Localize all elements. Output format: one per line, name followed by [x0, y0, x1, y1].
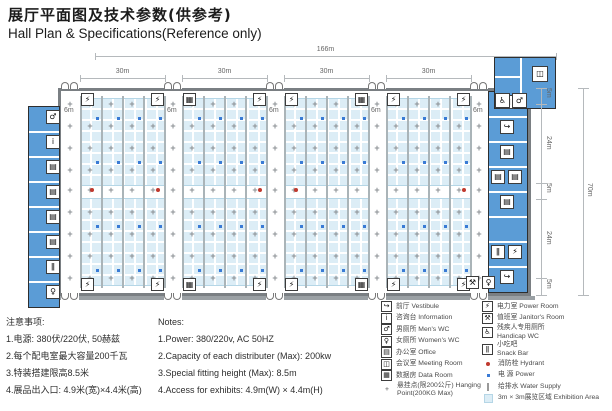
- hall-wall-right: [528, 88, 531, 296]
- room-divider: [489, 266, 527, 268]
- hanging-point-icon: +: [392, 186, 400, 194]
- legend-row: ⚡电力室 Power Room: [482, 301, 612, 313]
- hanging-point-icon: +: [434, 122, 442, 130]
- power-icon: [96, 161, 99, 164]
- hanging-point-icon: +: [373, 144, 381, 152]
- hanging-point-icon: +: [353, 230, 361, 238]
- information-icon: i: [46, 135, 60, 149]
- hanging-point-icon: +: [311, 208, 319, 216]
- hanging-point-icon: +: [373, 252, 381, 260]
- dim-label: 5m: [545, 279, 552, 289]
- hanging-point-icon: +: [66, 144, 74, 152]
- water-supply-line: [122, 96, 124, 288]
- power-icon: [138, 225, 141, 228]
- office-icon: ▤: [46, 185, 60, 199]
- hanging-point-icon: +: [373, 208, 381, 216]
- hanging-point-icon: +: [455, 122, 463, 130]
- dim-label: 30m: [213, 68, 237, 75]
- power-icon: [198, 269, 201, 272]
- door-arc: [70, 82, 78, 89]
- dim-tick: [95, 53, 96, 60]
- power-icon: [159, 225, 162, 228]
- power-room-icon: ⚡: [482, 301, 493, 312]
- water-supply-line: [164, 96, 166, 288]
- hanging-point-icon: +: [169, 208, 177, 216]
- door-arc: [173, 82, 181, 89]
- office-icon: ▤: [491, 170, 505, 184]
- water-supply-line: [143, 96, 145, 288]
- dim-label: 24m: [545, 136, 552, 150]
- hanging-point-icon: +: [107, 144, 115, 152]
- legend: ↪前厅 Vestibulei咨询台 Information♂男厕所 Men's …: [381, 301, 612, 399]
- door-arc: [173, 293, 181, 300]
- hanging-point-icon: +: [107, 274, 115, 282]
- hydrant-icon: [258, 188, 262, 192]
- room-divider: [489, 141, 527, 143]
- hanging-point-icon: +: [332, 122, 340, 130]
- office-icon: ▤: [381, 347, 392, 358]
- door-arc: [479, 82, 487, 89]
- hanging-point-icon: +: [169, 144, 177, 152]
- hanging-point-icon: +: [290, 166, 298, 174]
- door-arc: [164, 293, 172, 300]
- dim-label: 24m: [545, 231, 552, 245]
- hydrant-icon: [90, 188, 94, 192]
- legend-label: 会议室 Meeting Room: [396, 360, 462, 369]
- power-icon: [363, 269, 366, 272]
- hanging-point-icon: +: [392, 252, 400, 260]
- power-room-icon: ⚡: [151, 93, 164, 106]
- power-icon: [261, 269, 264, 272]
- note-line: 4.展品出入口: 4.9米(宽)×4.4米(高): [6, 382, 156, 399]
- hanging-point-icon: +: [149, 208, 157, 216]
- handicap-wc-icon: ♿: [495, 93, 510, 108]
- hanging-point-icon: +: [413, 230, 421, 238]
- power-icon: [219, 225, 222, 228]
- door-arc: [470, 82, 478, 89]
- power-icon: [159, 269, 162, 272]
- hanging-point-icon: +: [332, 274, 340, 282]
- office-icon: ▤: [46, 160, 60, 174]
- hanging-point-icon: +: [413, 208, 421, 216]
- room-divider: [489, 241, 527, 243]
- door-arc: [61, 293, 69, 300]
- power-icon: [300, 161, 303, 164]
- hanging-point-icon: +: [311, 166, 319, 174]
- power-icon: [219, 269, 222, 272]
- dim-tick: [267, 75, 268, 82]
- door-arc: [470, 293, 478, 300]
- power-icon: [444, 269, 447, 272]
- hydrant-icon: [462, 188, 466, 192]
- hanging-point-icon: +: [455, 252, 463, 260]
- legend-row: ♂男厕所 Men's WC: [381, 324, 481, 336]
- legend-row: ♿残疾人专用厕所 Handicap WC: [482, 324, 612, 341]
- power-icon: [138, 161, 141, 164]
- power-icon: [96, 269, 99, 272]
- hanging-point-icon: +: [86, 252, 94, 260]
- legend-row: 消防栓 Hydrant: [482, 358, 612, 370]
- snack-bar-icon: ǁ: [491, 245, 505, 259]
- hanging-point-icon: +: [290, 144, 298, 152]
- hanging-point-icon: +: [311, 100, 319, 108]
- hanging-point-icon: +: [209, 230, 217, 238]
- vestibule-icon: ↪: [500, 270, 514, 284]
- hanging-point-icon: +: [413, 186, 421, 194]
- power-icon: [117, 269, 120, 272]
- hanging-point-icon: +: [311, 186, 319, 194]
- power-icon: [402, 117, 405, 120]
- hanging-point-icon: +: [475, 166, 483, 174]
- power-icon: [159, 161, 162, 164]
- hanging-point-icon: +: [128, 208, 136, 216]
- legend-row: 给排水 Water Supply: [482, 381, 612, 393]
- door-arc: [377, 293, 385, 300]
- dim-tick: [80, 75, 81, 82]
- power-room-icon: ⚡: [81, 278, 94, 291]
- door-opening: [266, 82, 284, 89]
- dim-tick: [578, 295, 589, 296]
- hanging-point-icon: +: [66, 186, 74, 194]
- hanging-point-icon: +: [271, 186, 279, 194]
- door-arc: [70, 293, 78, 300]
- door-arc: [377, 82, 385, 89]
- hanging-point-icon: +: [66, 252, 74, 260]
- power-icon: [261, 225, 264, 228]
- power-icon: [444, 161, 447, 164]
- hanging-point-icon: +: [271, 208, 279, 216]
- power-icon: [444, 117, 447, 120]
- room-divider: [29, 156, 59, 158]
- hanging-point-icon: +: [413, 144, 421, 152]
- hanging-point-icon: +: [86, 208, 94, 216]
- hydrant-icon: [294, 188, 298, 192]
- dim-line: [284, 78, 369, 79]
- dim-label: 30m: [417, 68, 441, 75]
- room-divider: [495, 76, 520, 78]
- hanging-point-icon: +: [107, 166, 115, 174]
- legend-label: 小吃吧 Snack Bar: [497, 341, 528, 358]
- snack-bar-icon: ǁ: [482, 344, 493, 355]
- hanging-point-icon: +: [149, 144, 157, 152]
- hanging-point-icon: +: [169, 166, 177, 174]
- room-divider: [489, 191, 527, 193]
- power-room-icon: ⚡: [508, 245, 522, 259]
- hanging-point-icon: +: [188, 252, 196, 260]
- power-icon: [423, 161, 426, 164]
- hanging-point-icon: +: [373, 274, 381, 282]
- hanging-point-icon: +: [230, 252, 238, 260]
- hanging-point-icon: +: [107, 230, 115, 238]
- room-divider: [489, 116, 527, 118]
- power-icon: [138, 117, 141, 120]
- power-icon: [117, 225, 120, 228]
- hanging-point-icon: +: [107, 122, 115, 130]
- water-supply-line: [368, 96, 370, 288]
- water-supply-icon: [482, 382, 494, 392]
- legend-label: 残疾人专用厕所 Handicap WC: [497, 324, 545, 341]
- hanging-point-icon: +: [251, 166, 259, 174]
- water-supply-line: [428, 96, 430, 288]
- legend-row: 3m × 3m展览区域 Exhibition Area: [482, 393, 612, 405]
- legend-row: ▦数据房 Data Room: [381, 370, 481, 382]
- hanging-point-icon: +: [290, 252, 298, 260]
- water-supply-line: [407, 96, 409, 288]
- office-icon: ▤: [46, 210, 60, 224]
- power-icon: [321, 225, 324, 228]
- power-icon: [138, 269, 141, 272]
- water-supply-line: [80, 96, 82, 288]
- hanging-point-icon: +: [149, 166, 157, 174]
- door-opening: [470, 82, 488, 89]
- power-icon: [96, 117, 99, 120]
- room-divider: [29, 256, 59, 258]
- dim-tick: [284, 75, 285, 82]
- power-icon: [261, 117, 264, 120]
- power-icon: [300, 269, 303, 272]
- power-icon: [465, 225, 468, 228]
- hall-wall-top: [58, 88, 531, 91]
- aisle-width-label: 6m: [473, 107, 483, 114]
- power-icon: [117, 117, 120, 120]
- hanging-point-icon: +: [230, 186, 238, 194]
- hanging-point-icon: +: [392, 166, 400, 174]
- door-opening: [61, 82, 79, 89]
- notes-zh: 注意事项: 1.电源: 380伏/220伏, 50赫兹2.每个配电室最大容量20…: [6, 314, 156, 399]
- womens-wc-icon: ♀: [381, 336, 392, 347]
- legend-label: 给排水 Water Supply: [498, 383, 561, 392]
- hanging-point-icon: +: [188, 208, 196, 216]
- data-room-icon: ▦: [355, 278, 368, 291]
- note-line: 4.Access for exhibits: 4.9m(W) × 4.4m(H): [158, 382, 376, 399]
- data-room-icon: ▦: [183, 278, 196, 291]
- note-line: 1.Power: 380/220v, AC 50HZ: [158, 331, 376, 348]
- power-icon: [342, 269, 345, 272]
- hanging-point-icon: +: [290, 230, 298, 238]
- water-supply-line: [386, 96, 388, 288]
- note-line: 1.电源: 380伏/220伏, 50赫兹: [6, 331, 156, 348]
- power-icon: [219, 161, 222, 164]
- water-supply-line: [224, 96, 226, 288]
- hanging-point-icon: +: [128, 252, 136, 260]
- door-opening: [368, 82, 386, 89]
- power-icon: [342, 117, 345, 120]
- hanging-point-icon: +: [434, 208, 442, 216]
- note-line: 2.Capacity of each distributer (Max): 20…: [158, 348, 376, 365]
- hanging-point-icon: +: [290, 122, 298, 130]
- hanging-point-icon: +: [209, 252, 217, 260]
- power-icon: [321, 161, 324, 164]
- water-supply-line: [305, 96, 307, 288]
- dim-line: [541, 88, 542, 295]
- hanging-point-icon: +: [230, 122, 238, 130]
- meeting-room-icon: ◫: [532, 66, 548, 82]
- door-opening: [470, 293, 488, 300]
- hanging-point-icon: +: [475, 252, 483, 260]
- aisle-width-label: 6m: [269, 107, 279, 114]
- hanging-point-icon: +: [251, 144, 259, 152]
- hanging-point-icon: +: [392, 122, 400, 130]
- dim-line: [95, 56, 556, 57]
- hanging-point-icon: +: [86, 166, 94, 174]
- power-room-icon: ⚡: [457, 93, 470, 106]
- hanging-point-icon: +: [86, 230, 94, 238]
- room-divider: [489, 216, 527, 218]
- water-supply-line: [470, 96, 472, 288]
- hanging-point-icon: +: [475, 122, 483, 130]
- legend-label: 办公室 Office: [396, 349, 436, 358]
- legend-row: ♀女厕所 Women's WC: [381, 336, 481, 348]
- power-icon: [363, 117, 366, 120]
- dim-line: [583, 88, 584, 295]
- hanging-point-icon: +: [128, 274, 136, 282]
- power-icon: [402, 161, 405, 164]
- power-icon: [198, 225, 201, 228]
- hanging-point-icon: +: [66, 122, 74, 130]
- legend-label: 3m × 3m展览区域 Exhibition Area: [498, 394, 599, 403]
- hanging-point-icon: +: [209, 100, 217, 108]
- water-supply-line: [182, 96, 184, 288]
- door-arc: [368, 293, 376, 300]
- door-arc: [266, 82, 274, 89]
- legend-label: 值班室 Janitor's Room: [497, 314, 564, 323]
- dim-tick: [536, 295, 547, 296]
- hanging-point-icon: +: [311, 122, 319, 130]
- legend-row: 电 源 Power: [482, 370, 612, 382]
- dim-label: 5m: [545, 183, 552, 193]
- power-icon: [159, 117, 162, 120]
- door-arc: [479, 293, 487, 300]
- hanging-point-icon: +: [149, 122, 157, 130]
- door-arc: [368, 82, 376, 89]
- vestibule-icon: ↪: [500, 120, 514, 134]
- water-supply-line: [284, 96, 286, 288]
- hanging-point-icon: +: [86, 144, 94, 152]
- hanging-point-icon: +: [230, 208, 238, 216]
- power-icon: [363, 161, 366, 164]
- page: 展厅平面图及技术参数(供参考) Hall Plan & Specificatio…: [0, 0, 612, 411]
- hanging-point-icon: +: [107, 100, 115, 108]
- door-arc: [164, 82, 172, 89]
- hanging-point-icon: +: [230, 166, 238, 174]
- hanging-point-icon: +: [188, 144, 196, 152]
- power-icon: [342, 161, 345, 164]
- hanging-point-icon: +: [271, 144, 279, 152]
- hanging-point-icon: +: [86, 122, 94, 130]
- notes-zh-items: 1.电源: 380伏/220伏, 50赫兹2.每个配电室最大容量200千瓦3.特…: [6, 331, 156, 399]
- hanging-point-icon: +: [455, 230, 463, 238]
- room-divider: [29, 281, 59, 283]
- office-icon: ▤: [500, 145, 514, 159]
- hanging-point-icon: +: [311, 252, 319, 260]
- hanging-point-icon: +: [332, 100, 340, 108]
- dim-tick: [536, 199, 547, 200]
- mens-wc-icon: ♂: [512, 93, 527, 108]
- hanging-point-icon: +: [169, 230, 177, 238]
- hanging-point-icon: +: [373, 166, 381, 174]
- hanging-point-icon: +: [128, 144, 136, 152]
- power-room-icon: ⚡: [285, 278, 298, 291]
- power-icon: [342, 225, 345, 228]
- hanging-point-icon: +: [434, 144, 442, 152]
- notes-en-items: 1.Power: 380/220v, AC 50HZ2.Capacity of …: [158, 331, 376, 399]
- legend-label: 男厕所 Men's WC: [396, 326, 449, 335]
- hanging-point-icon: +: [332, 144, 340, 152]
- aisle-width-label: 6m: [64, 107, 74, 114]
- power-icon: [402, 225, 405, 228]
- legend-label: 数据房 Data Room: [396, 372, 453, 381]
- hanging-point-icon: +: [434, 252, 442, 260]
- vestibule-icon: ↪: [381, 301, 392, 312]
- exhibition-area-icon: [482, 393, 494, 403]
- janitors-room-icon: ⚒: [466, 276, 479, 289]
- power-icon: [321, 117, 324, 120]
- mens-wc-icon: ♂: [381, 324, 392, 335]
- hanging-point-icon: +: [353, 144, 361, 152]
- hanging-point-icon: +: [271, 274, 279, 282]
- hanging-point-icon: +: [434, 230, 442, 238]
- hanging-point-icon: +: [107, 208, 115, 216]
- power-icon: [444, 225, 447, 228]
- power-icon: [261, 161, 264, 164]
- hanging-point-icon: +: [271, 166, 279, 174]
- hanging-point-icon: +: [332, 166, 340, 174]
- water-supply-line: [266, 96, 268, 288]
- hanging-point-icon: +: [251, 122, 259, 130]
- hanging-point-icon: +: [311, 230, 319, 238]
- hanging-point-icon: +: [251, 208, 259, 216]
- hanging-point-icon: +: [188, 230, 196, 238]
- hanging-point-icon: +: [434, 166, 442, 174]
- hanging-point-icon: +: [475, 186, 483, 194]
- hanging-point-icon: +: [230, 274, 238, 282]
- power-icon: [465, 269, 468, 272]
- note-line: 2.每个配电室最大容量200千瓦: [6, 348, 156, 365]
- hanging-point-icon: +: [128, 166, 136, 174]
- hanging-point-icon: +: [353, 252, 361, 260]
- hanging-point-icon: +: [332, 208, 340, 216]
- legend-label: 咨询台 Information: [396, 314, 452, 323]
- hanging-point-icon: +: [209, 274, 217, 282]
- hanging-point-icon: +: [353, 208, 361, 216]
- hanging-point-icon: +: [413, 122, 421, 130]
- legend-row: ◫会议室 Meeting Room: [381, 359, 481, 371]
- aisle-width-label: 6m: [371, 107, 381, 114]
- hanging-point-icon: +: [188, 186, 196, 194]
- legend-label: 悬挂点(限200公斤) Hanging Point(200KG Max): [397, 382, 481, 399]
- water-supply-line: [326, 96, 328, 288]
- power-room-icon: ⚡: [151, 278, 164, 291]
- water-supply-line: [203, 96, 205, 288]
- hanging-point-icon: +: [107, 252, 115, 260]
- hanging-point-icon: +: [353, 122, 361, 130]
- power-icon: [423, 117, 426, 120]
- hanging-point-icon: +: [434, 274, 442, 282]
- hanging-point-icon: +: [107, 186, 115, 194]
- office-icon: ▤: [46, 235, 60, 249]
- power-room-icon: ⚡: [387, 93, 400, 106]
- hanging-point-icon: +: [392, 230, 400, 238]
- hanging-point-icon: +: [475, 144, 483, 152]
- room-divider: [489, 166, 527, 168]
- hanging-point-icon: +: [413, 100, 421, 108]
- power-room-icon: ⚡: [253, 278, 266, 291]
- legend-label: 电 源 Power: [498, 371, 535, 380]
- door-arc: [61, 82, 69, 89]
- hanging-point-icon: +: [381, 385, 393, 395]
- legend-row: ↪前厅 Vestibule: [381, 301, 481, 313]
- legend-row: ▤办公室 Office: [381, 347, 481, 359]
